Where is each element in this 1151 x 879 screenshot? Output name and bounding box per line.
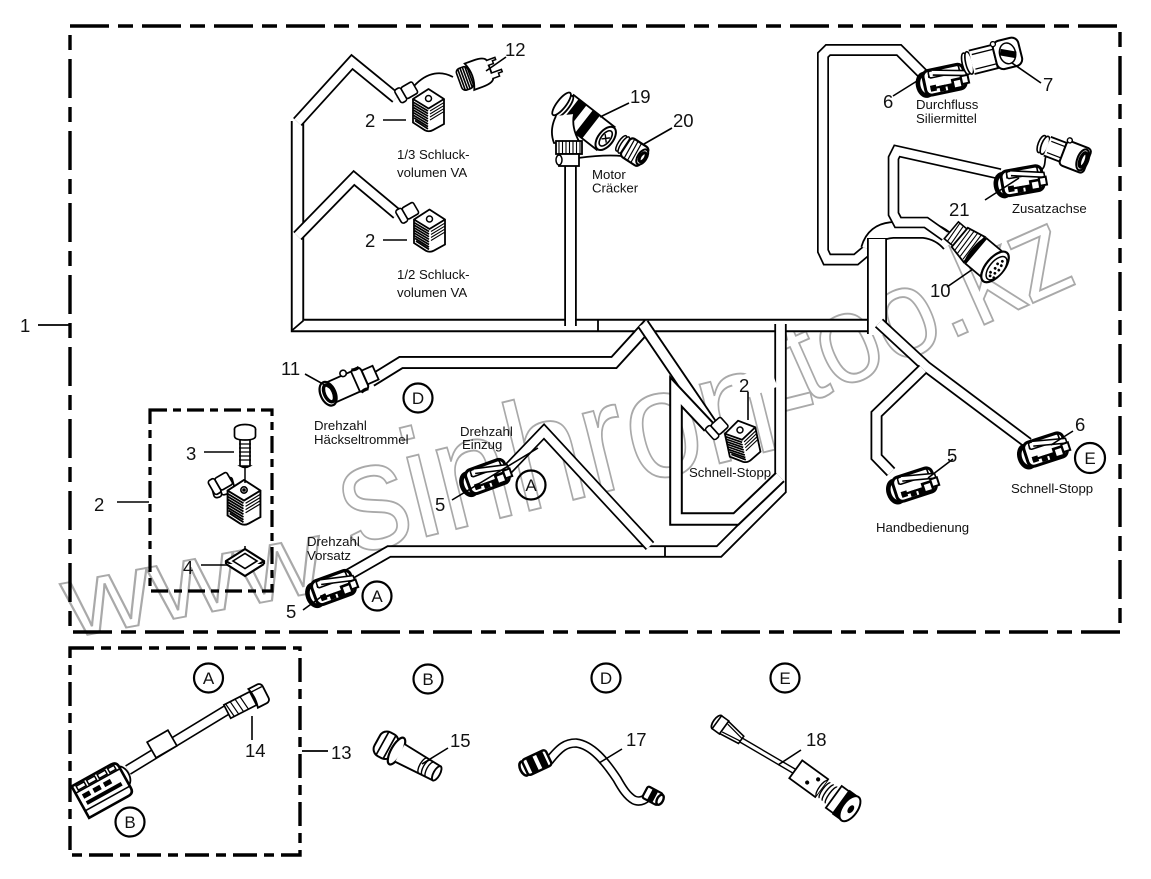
svg-text:19: 19 xyxy=(630,86,651,107)
svg-text:A: A xyxy=(525,476,537,495)
svg-text:3: 3 xyxy=(186,443,196,464)
svg-text:6: 6 xyxy=(1075,414,1085,435)
svg-text:volumen VA: volumen VA xyxy=(397,165,467,180)
svg-text:Schnell-Stopp: Schnell-Stopp xyxy=(689,465,771,480)
svg-text:Vorsatz: Vorsatz xyxy=(307,548,351,563)
svg-text:1/2 Schluck-: 1/2 Schluck- xyxy=(397,267,470,282)
svg-text:18: 18 xyxy=(806,729,827,750)
svg-text:15: 15 xyxy=(450,730,471,751)
svg-text:B: B xyxy=(124,813,135,832)
svg-text:Schnell-Stopp: Schnell-Stopp xyxy=(1011,481,1093,496)
svg-text:6: 6 xyxy=(883,91,893,112)
svg-text:7: 7 xyxy=(1043,74,1053,95)
svg-text:Cräcker: Cräcker xyxy=(592,181,639,196)
svg-text:14: 14 xyxy=(245,740,266,761)
svg-text:5: 5 xyxy=(286,601,296,622)
svg-text:Drehzahl: Drehzahl xyxy=(314,418,367,433)
svg-text:1/3 Schluck-: 1/3 Schluck- xyxy=(397,147,470,162)
svg-text:2: 2 xyxy=(739,375,749,396)
svg-text:A: A xyxy=(371,587,383,606)
svg-text:B: B xyxy=(422,670,433,689)
svg-text:21: 21 xyxy=(949,199,970,220)
svg-text:2: 2 xyxy=(365,230,375,251)
svg-text:Einzug: Einzug xyxy=(462,437,502,452)
svg-text:E: E xyxy=(779,669,790,688)
svg-text:1: 1 xyxy=(20,315,30,336)
svg-text:D: D xyxy=(412,389,424,408)
svg-text:12: 12 xyxy=(505,39,526,60)
svg-text:17: 17 xyxy=(626,729,647,750)
svg-text:E: E xyxy=(1084,449,1095,468)
svg-text:11: 11 xyxy=(281,358,300,379)
svg-text:2: 2 xyxy=(365,110,375,131)
svg-text:13: 13 xyxy=(331,742,352,763)
svg-text:5: 5 xyxy=(435,494,445,515)
svg-text:20: 20 xyxy=(673,110,694,131)
svg-text:4: 4 xyxy=(183,557,193,578)
svg-text:A: A xyxy=(203,669,215,688)
svg-text:10: 10 xyxy=(930,280,951,301)
svg-text:5: 5 xyxy=(947,445,957,466)
svg-text:Drehzahl: Drehzahl xyxy=(307,534,360,549)
svg-text:Siliermittel: Siliermittel xyxy=(916,111,977,126)
svg-text:2: 2 xyxy=(94,494,104,515)
svg-text:Häckseltrommel: Häckseltrommel xyxy=(314,432,409,447)
svg-text:Zusatzachse: Zusatzachse xyxy=(1012,201,1087,216)
svg-text:volumen VA: volumen VA xyxy=(397,285,467,300)
svg-text:Durchfluss: Durchfluss xyxy=(916,97,979,112)
svg-text:Handbedienung: Handbedienung xyxy=(876,520,969,535)
svg-text:D: D xyxy=(600,669,612,688)
